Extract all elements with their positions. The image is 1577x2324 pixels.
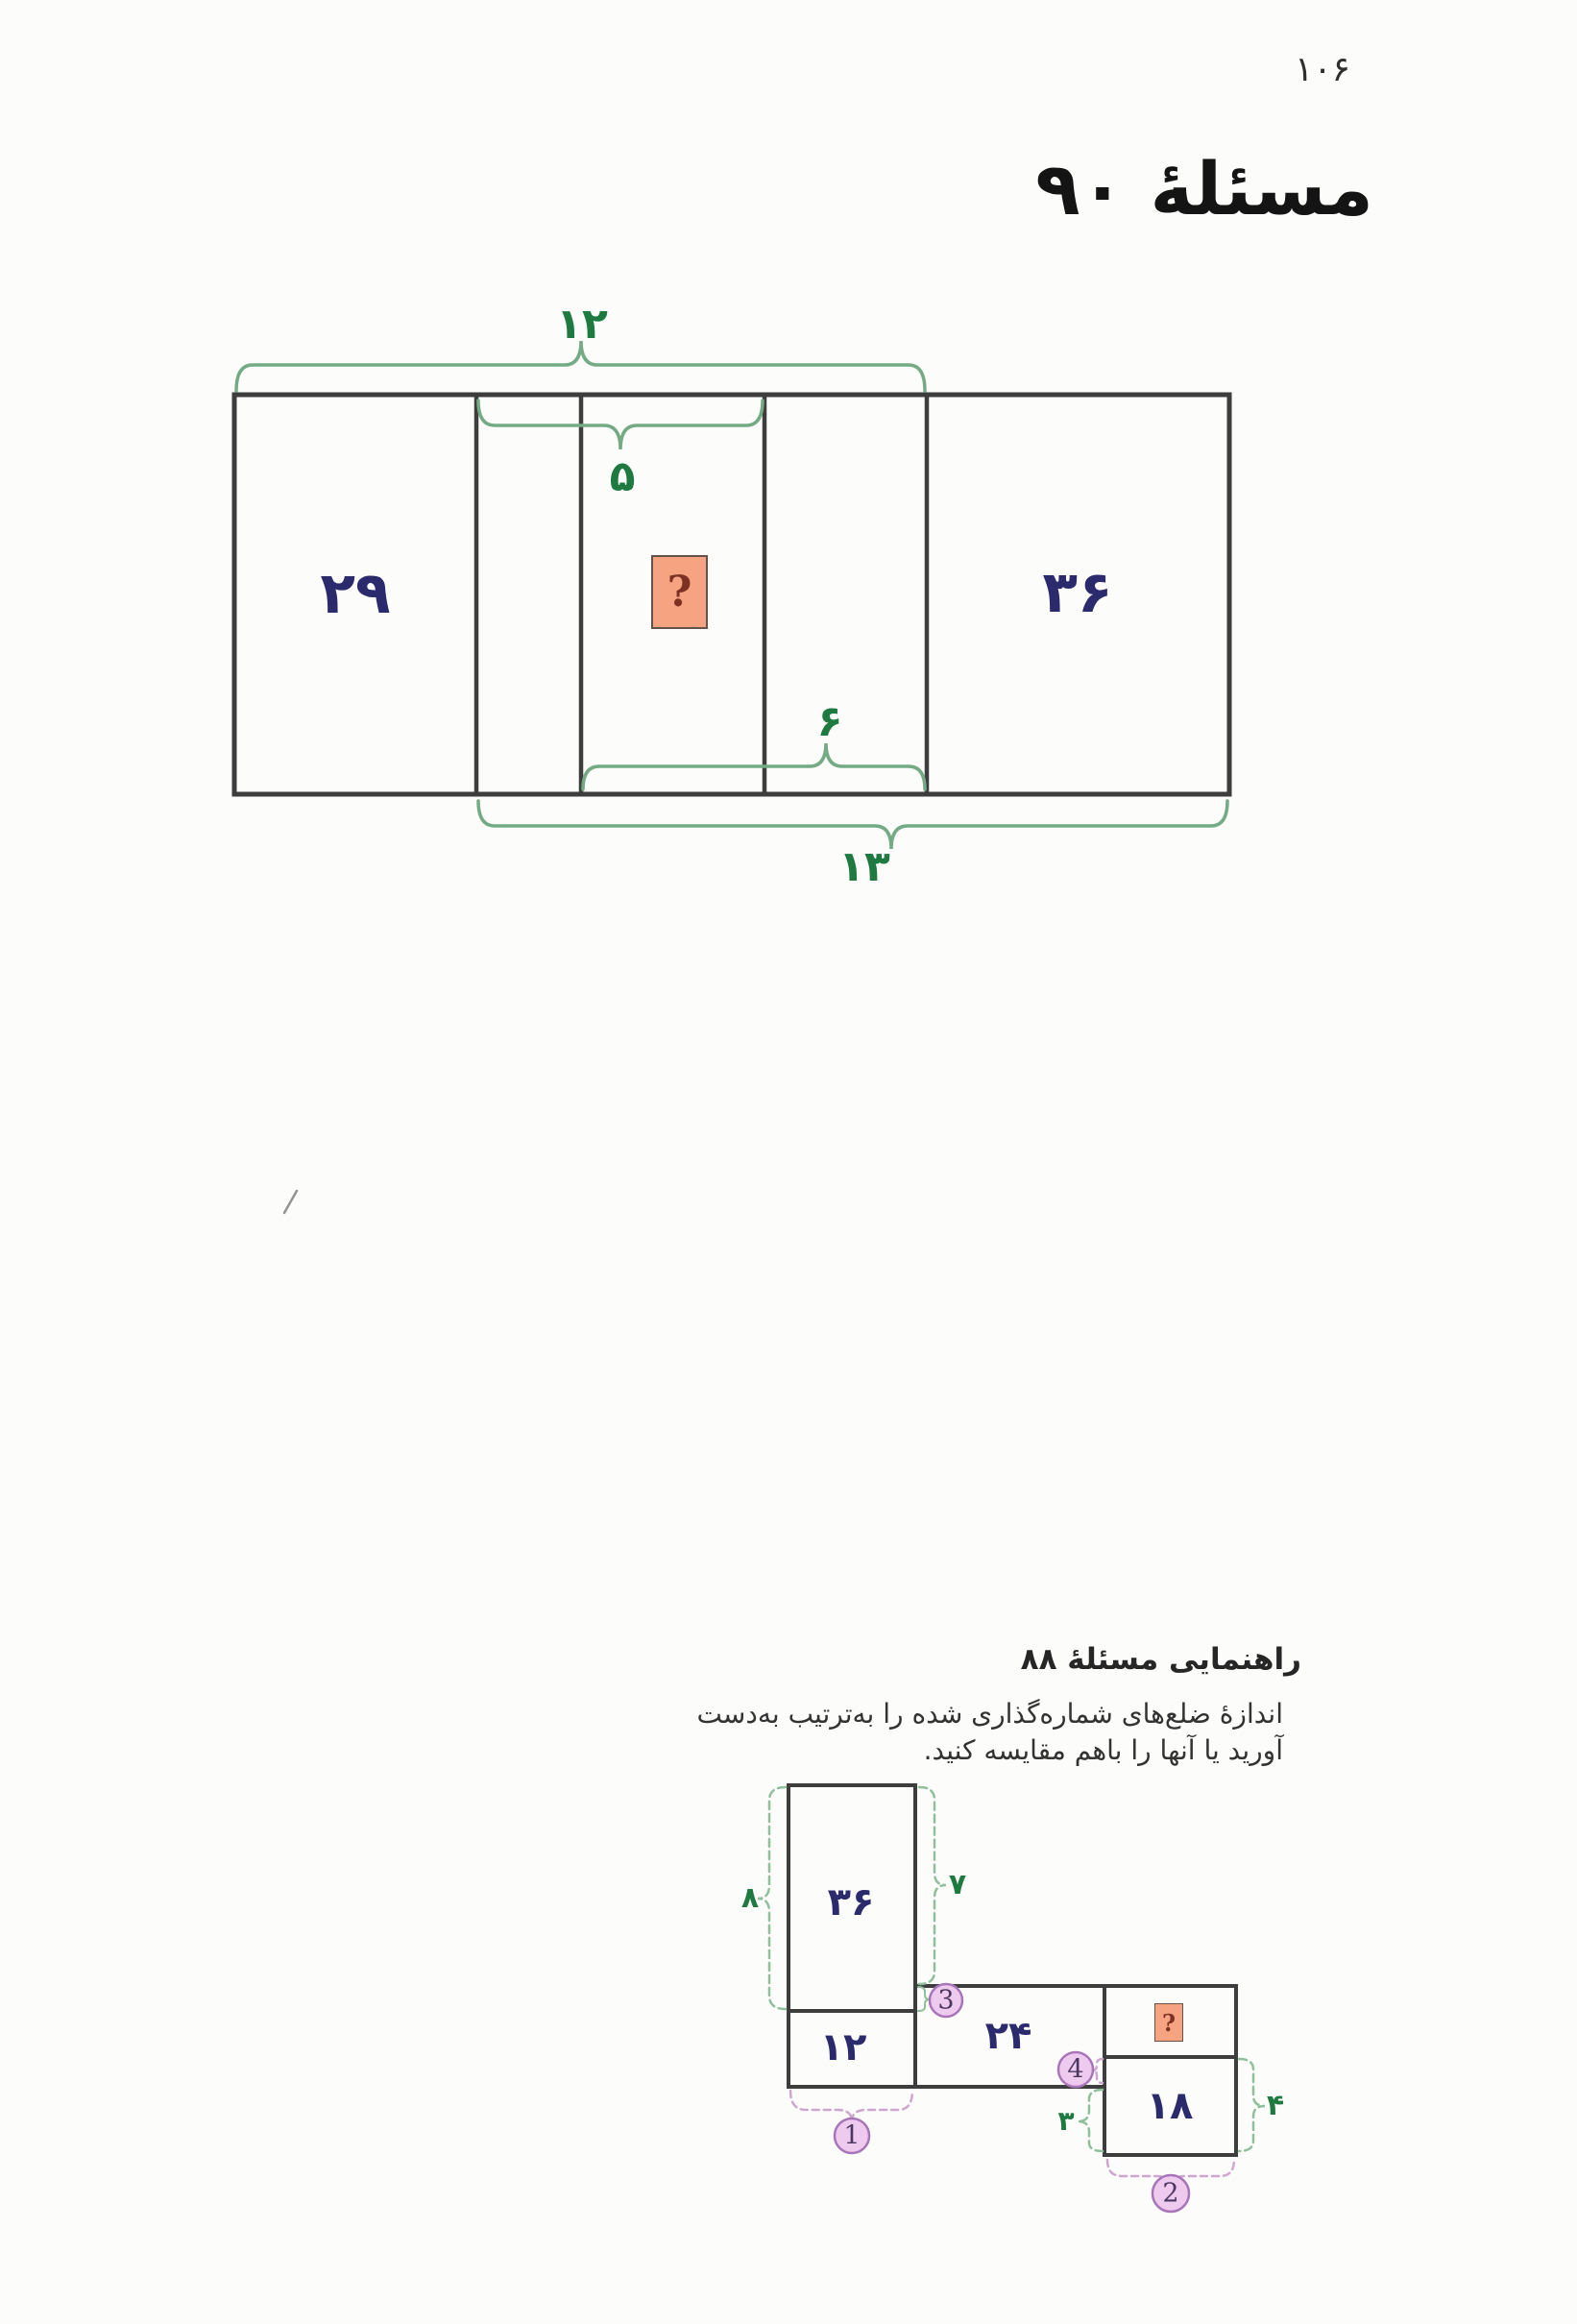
stray-mark [284, 1191, 297, 1213]
brace-side-8 [758, 1787, 786, 2009]
main-area-36: ۳۶ [1042, 564, 1112, 621]
brace-side-4 [1239, 2059, 1265, 2151]
figure-geometry [0, 0, 1577, 2324]
hint-area-18: ۱۸ [1147, 2087, 1194, 2125]
page-title: مسئلهٔ ۹۰ [1035, 146, 1373, 231]
hint-question-mark: ? [1162, 2009, 1176, 2037]
main-area-29: ۲۹ [320, 565, 390, 622]
hint-side-3: ۳ [1057, 2108, 1074, 2135]
hint-body-line-2: آورید یا آنها را باهم مقایسه کنید. [924, 1734, 1283, 1766]
brace-inner-5 [478, 400, 763, 449]
main-question-mark: ? [667, 568, 692, 617]
circle-3-digit: 3 [937, 1988, 954, 2014]
circle-4-digit: 4 [1067, 2057, 1083, 2083]
brace-inner-6 [583, 743, 925, 789]
hint-side-8: ۸ [741, 1884, 759, 1913]
brace-side-3 [1078, 2090, 1103, 2151]
hint-unknown-box: ? [1154, 2003, 1183, 2042]
main-unknown-box: ? [651, 555, 708, 629]
main-width-13: ۱۳ [838, 846, 890, 888]
circle-1-digit: 1 [843, 2123, 860, 2149]
brace-side-7 [919, 1787, 946, 1984]
main-width-5: ۵ [610, 456, 636, 498]
circle-2-digit: 2 [1162, 2181, 1178, 2207]
brace-circle-3-tick [918, 1987, 930, 2011]
main-width-6: ۶ [817, 701, 843, 743]
hint-area-36: ۳۶ [828, 1883, 875, 1922]
book-page: ۱۰۶ مسئلهٔ ۹۰ ۲۹ ۳۶ ? ۱۲ ۵ ۶ ۱۳ راهنمایی… [0, 0, 1577, 2324]
hint-area-12: ۱۲ [820, 2028, 867, 2067]
brace-circle-1 [790, 2091, 912, 2121]
hint-side-4: ۴ [1267, 2092, 1284, 2120]
hint-heading: راهنمایی مسئلهٔ ۸۸ [1021, 1642, 1301, 1677]
hint-side-7: ۷ [949, 1871, 966, 1900]
hint-body-line-1: اندازهٔ ضلع‌های شماره‌گذاری شده را به‌تر… [696, 1698, 1283, 1730]
page-number: ۱۰۶ [1295, 50, 1350, 89]
hint-area-24: ۲۴ [985, 2017, 1032, 2055]
main-width-12: ۱۲ [556, 303, 608, 346]
